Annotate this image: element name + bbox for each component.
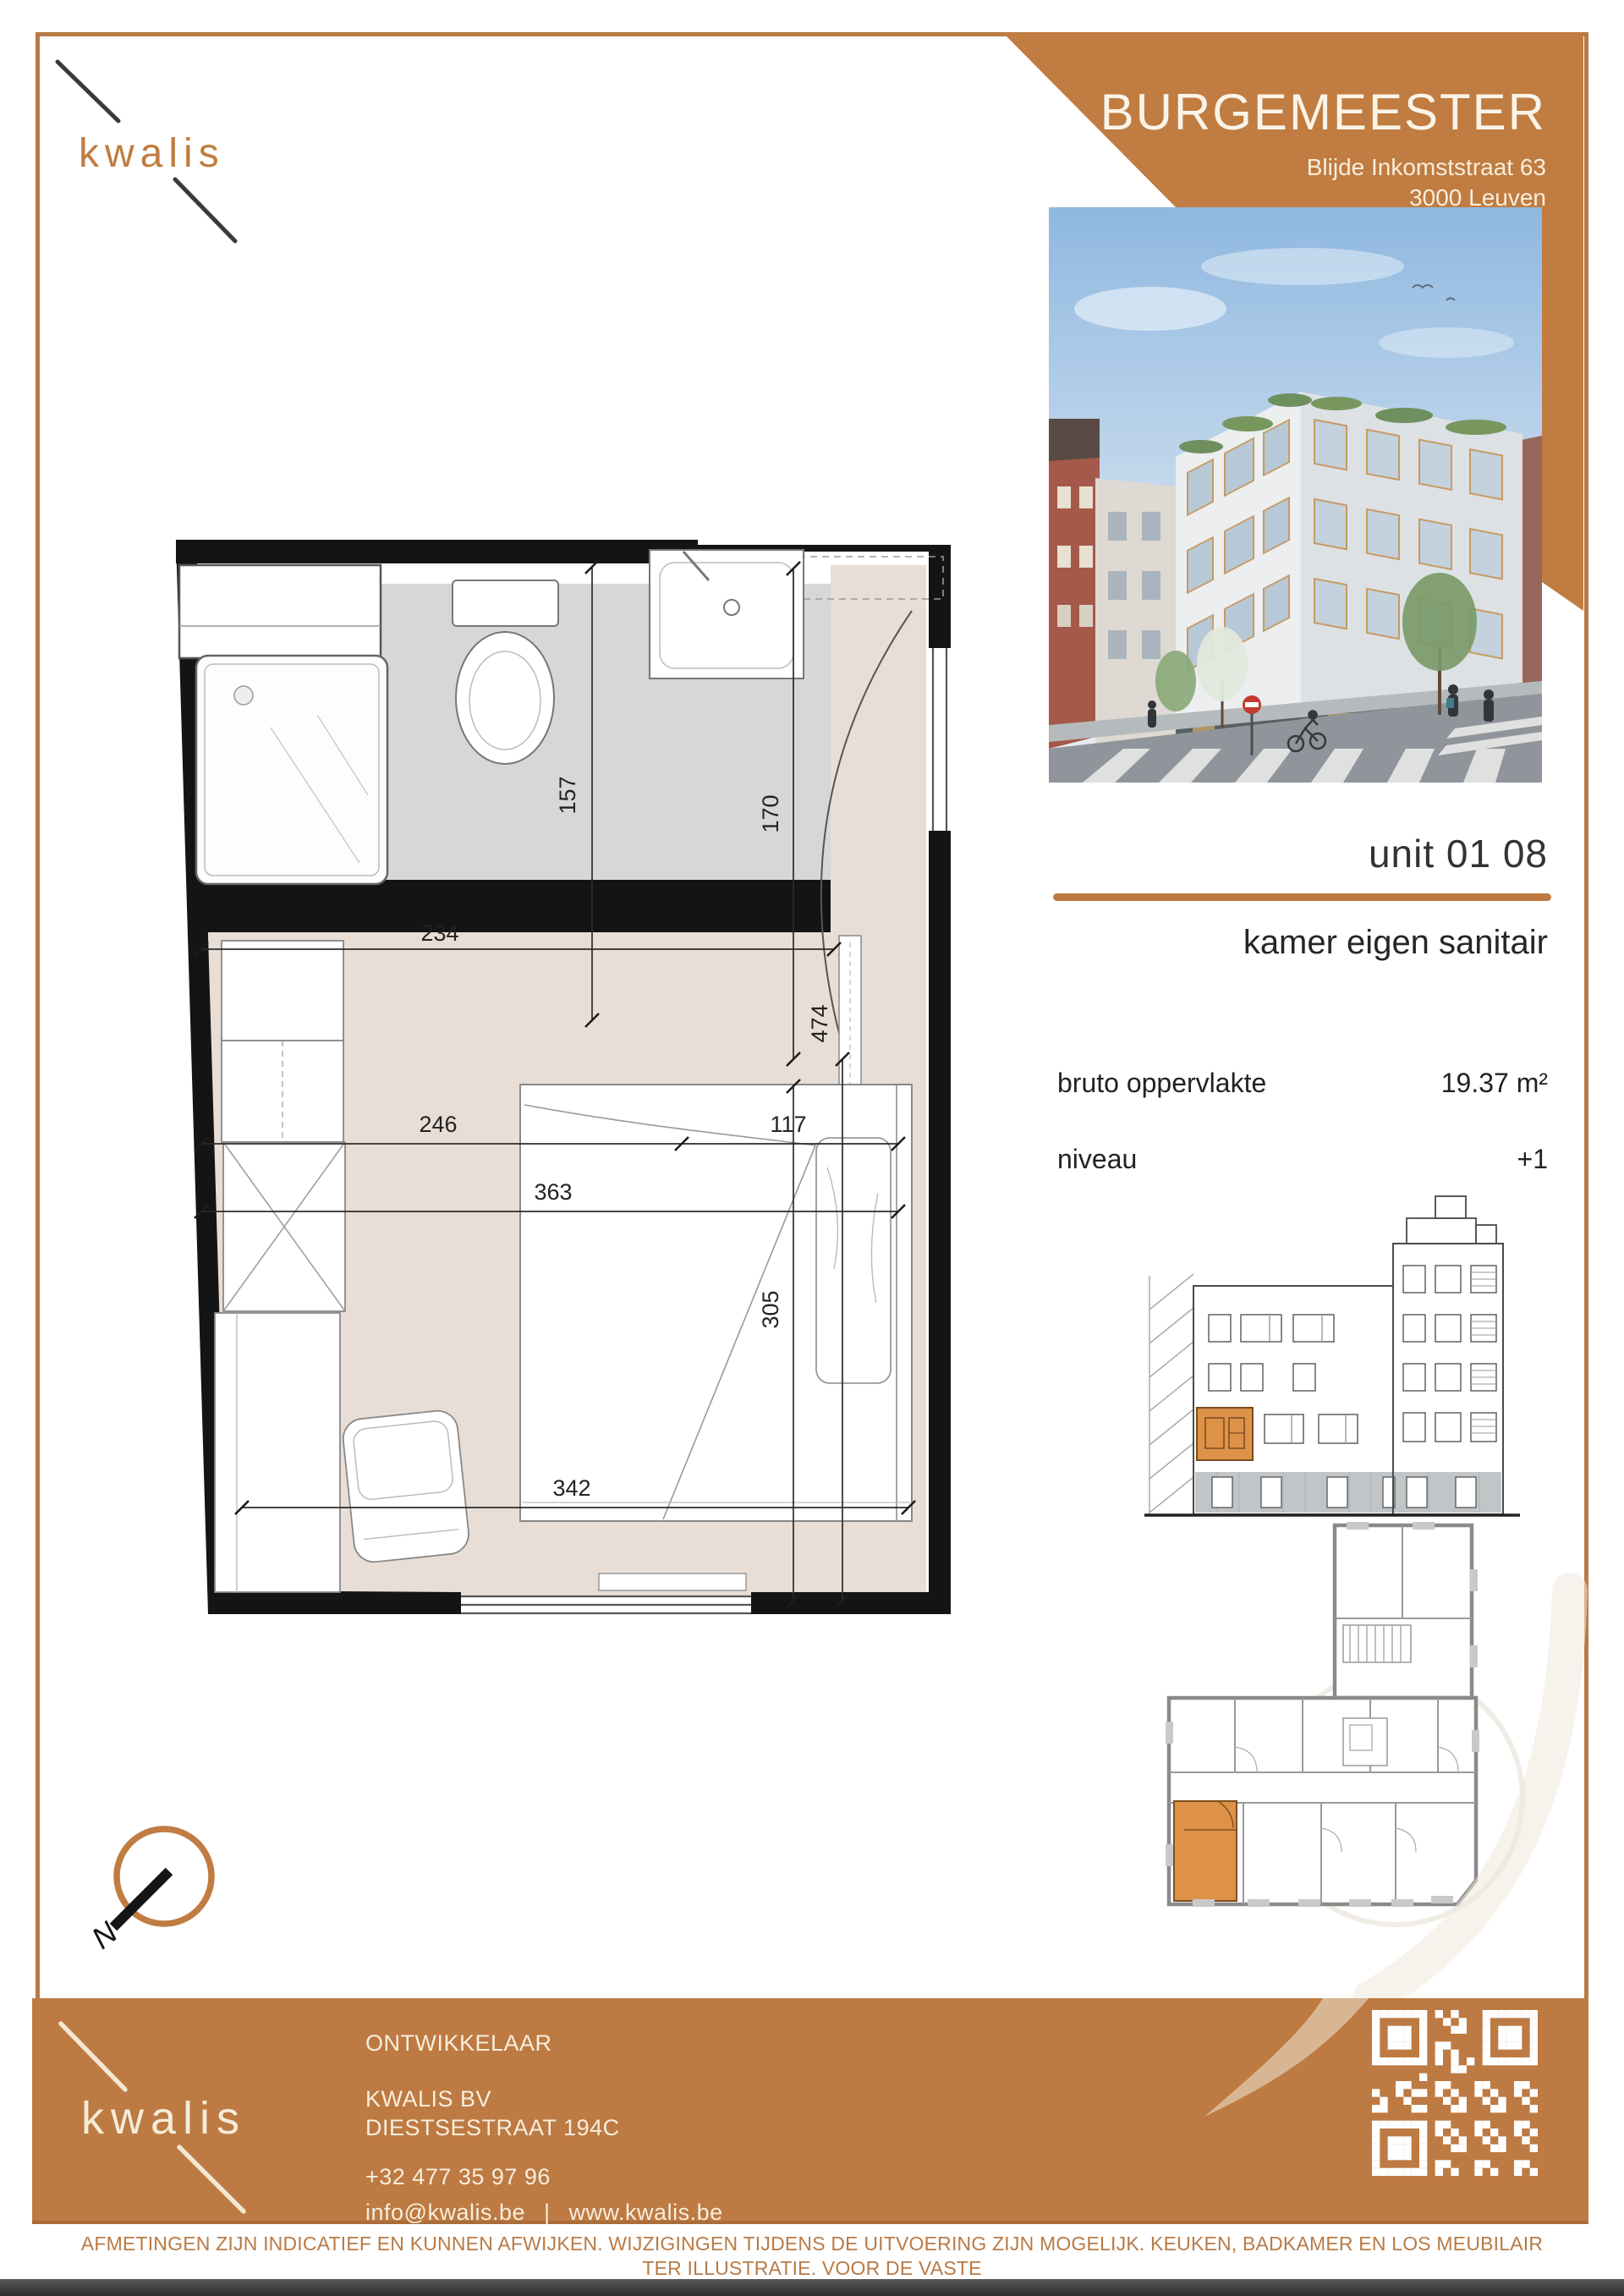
compass-north-icon: N [85, 1766, 296, 1978]
bed [520, 1085, 912, 1521]
highlighted-unit-elevation [1197, 1408, 1253, 1460]
dim-room-width-bottom: 342 [552, 1475, 590, 1501]
dim-room-width-total: 363 [534, 1179, 572, 1205]
dim-bath-depth: 157 [555, 776, 580, 814]
phone-number[interactable]: +32 477 35 97 96 [365, 2164, 551, 2190]
dim-bed-zone-depth: 305 [758, 1290, 783, 1328]
logo-text-footer: kwalis [81, 2093, 246, 2144]
logo-text: kwalis [79, 131, 225, 176]
developer-label: ONTWIKKELAAR [365, 2030, 552, 2057]
dim-entry-depth: 170 [758, 794, 783, 832]
dim-room-width-left: 246 [419, 1112, 457, 1137]
contact-separator: | [544, 2200, 551, 2225]
plan-sheet: kwalis BURGEMEESTER Blijde Inkomststraat… [0, 0, 1624, 2296]
unit-id: unit 01 08 [1369, 831, 1548, 876]
building-elevation [1138, 1174, 1527, 1530]
shower [196, 656, 387, 884]
project-title: BURGEMEESTER [1100, 83, 1546, 141]
level-label: niveau [1057, 1144, 1137, 1175]
footer-contact: ONTWIKKELAAR KWALIS BV DIESTSESTRAAT 194… [365, 2030, 1042, 2225]
pillow [816, 1138, 891, 1383]
unit-type: kamer eigen sanitair [1243, 924, 1548, 962]
area-value: 19.37 m² [1441, 1068, 1548, 1099]
level-value: +1 [1517, 1144, 1548, 1175]
adjacent-hatch [1149, 1274, 1193, 1514]
toilet [453, 580, 558, 764]
email-link[interactable]: info@kwalis.be [365, 2200, 525, 2225]
neighbor-roof [1049, 419, 1100, 461]
wardrobe [222, 941, 345, 1311]
website-link[interactable]: www.kwalis.be [569, 2200, 723, 2225]
logo-stroke-bottom [175, 179, 235, 241]
chair [341, 1409, 470, 1563]
kwalis-logo-footer: kwalis [51, 2013, 296, 2216]
logo-stroke-top [58, 62, 118, 121]
unit-floorplan: 234 157 170 305 474 246 117 363 342 [101, 499, 981, 1624]
company-name: KWALIS BV [365, 2086, 491, 2112]
swoosh-decoration [930, 1565, 1590, 2005]
dim-bath-width: 234 [420, 920, 458, 946]
building-photo [1049, 207, 1542, 783]
page-border-left [36, 32, 40, 1999]
sink [650, 550, 804, 678]
window-edge-bar [0, 2279, 1624, 2296]
kwalis-logo: kwalis [47, 42, 258, 254]
project-address-street: Blijde Inkomststraat 63 [1307, 154, 1546, 181]
dim-room-width-right: 117 [770, 1112, 806, 1137]
dim-room-depth-total: 474 [807, 1004, 832, 1042]
disclaimer-line1: AFMETINGEN ZIJN INDICATIEF EN KUNNEN AFW… [76, 2232, 1548, 2281]
desk [215, 1313, 340, 1592]
neighbor-white-building [1095, 478, 1176, 753]
unit-divider-rule [1053, 893, 1551, 901]
area-label: bruto oppervlakte [1057, 1068, 1266, 1099]
company-address: DIESTSESTRAAT 194C [365, 2115, 620, 2141]
qr-code[interactable] [1372, 2010, 1538, 2176]
